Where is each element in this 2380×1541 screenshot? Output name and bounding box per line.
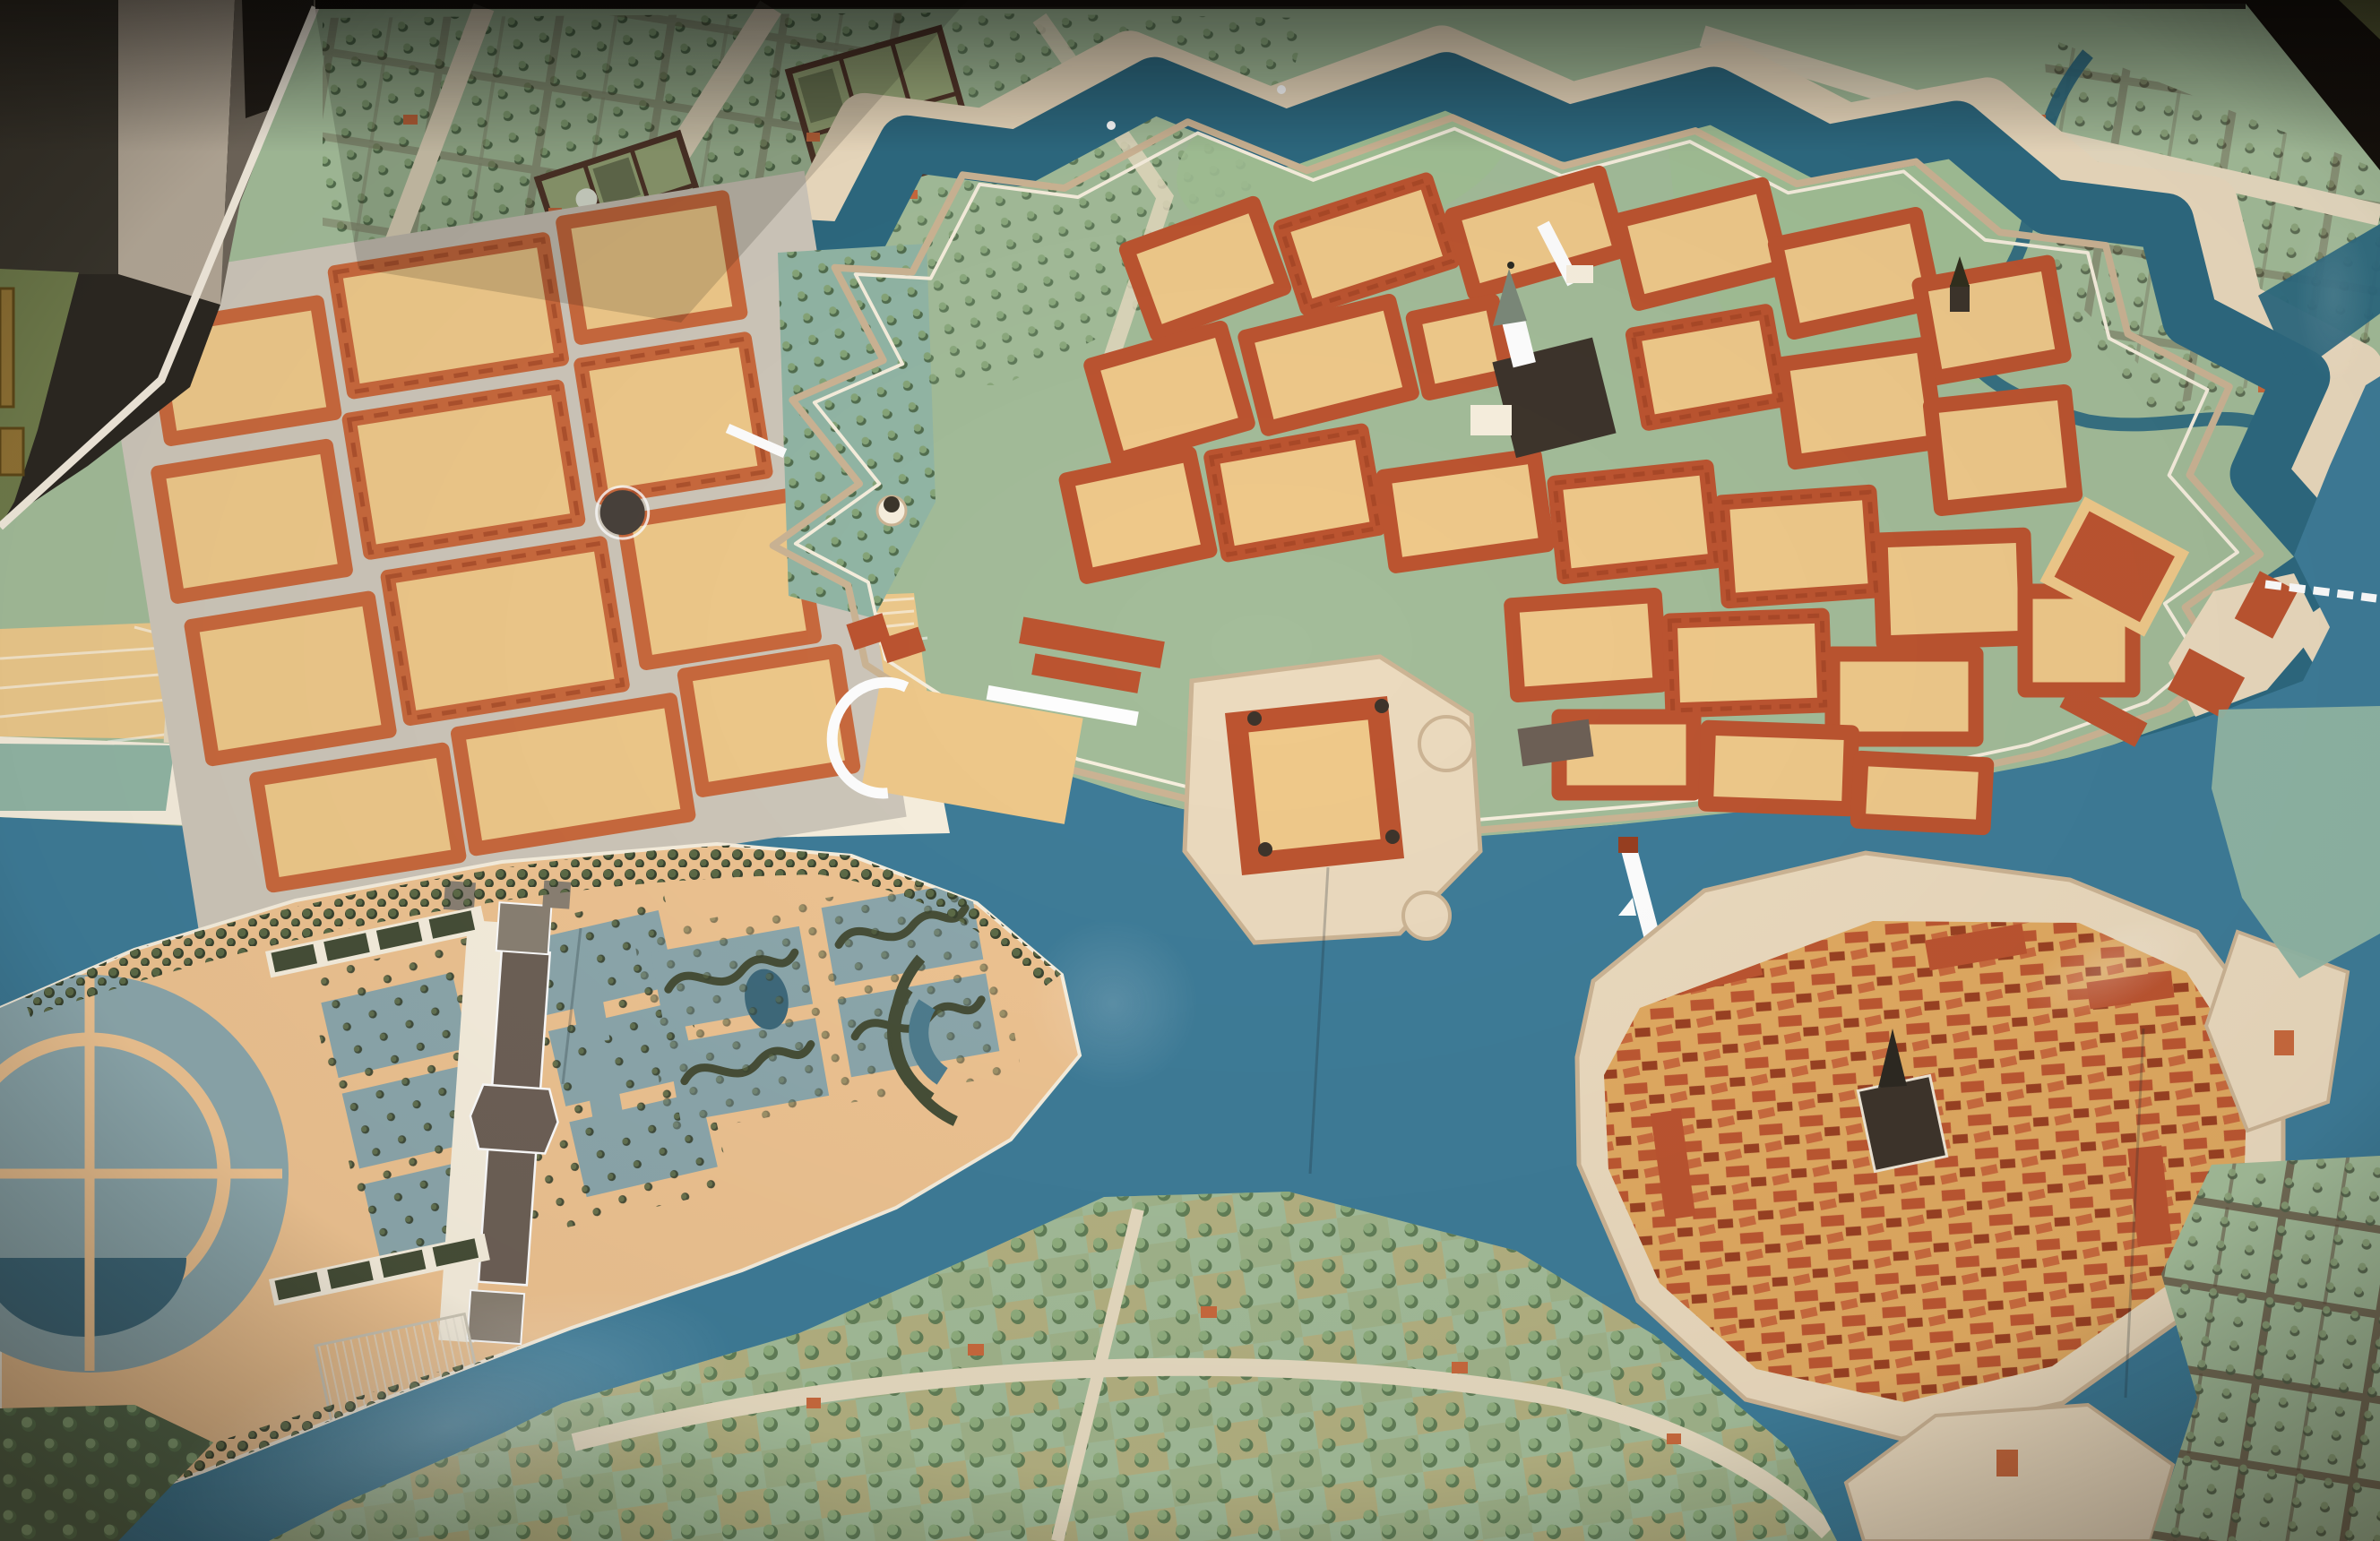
lighting [0,0,2380,1541]
city-model-photograph [0,0,2380,1541]
museum-photo [0,0,2380,1541]
vignette [0,0,2380,1541]
